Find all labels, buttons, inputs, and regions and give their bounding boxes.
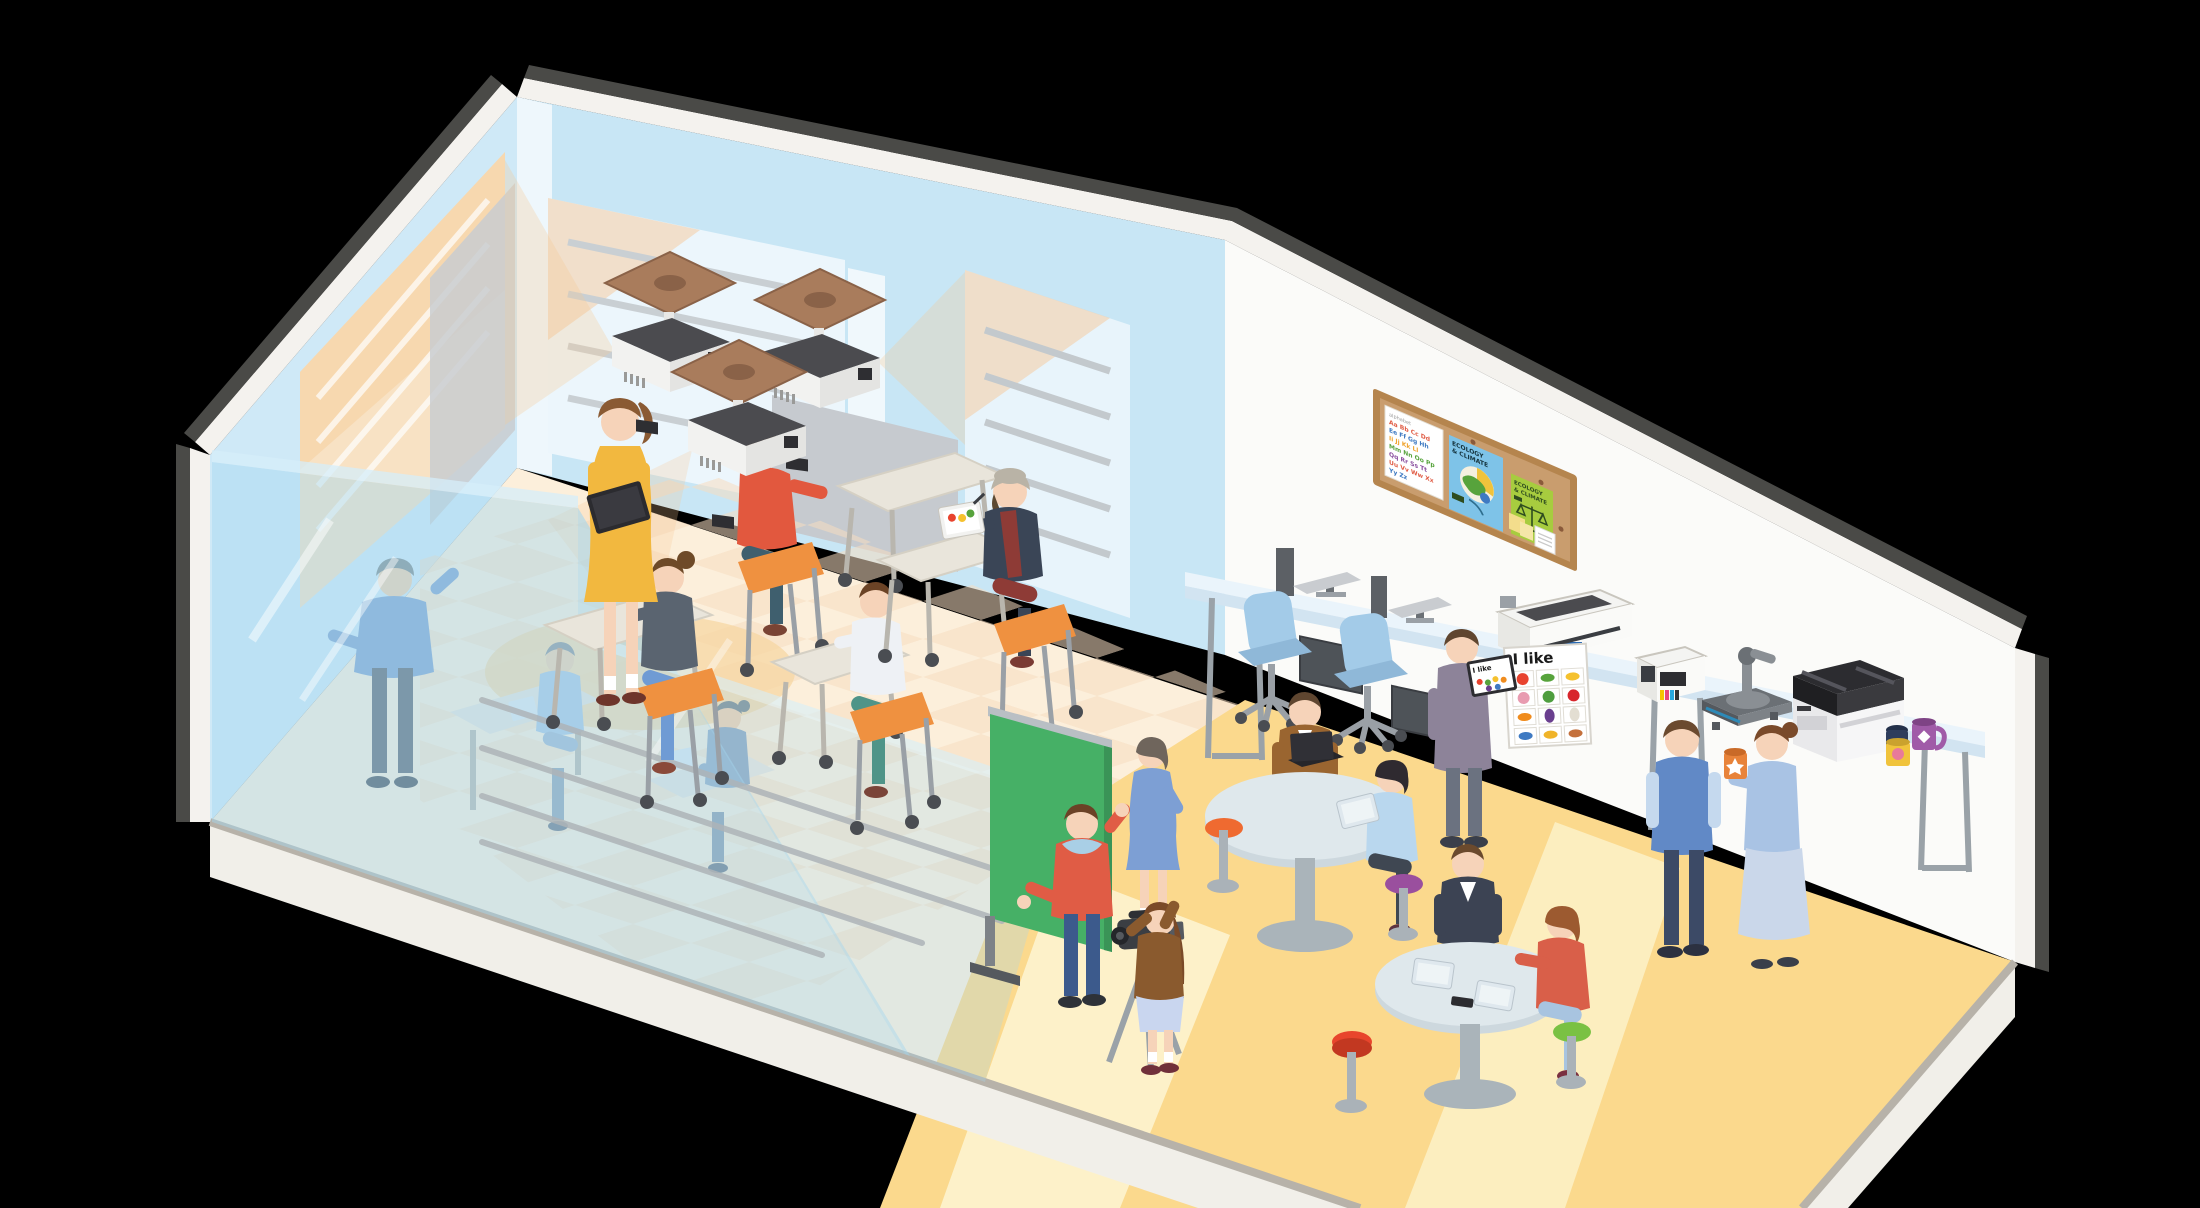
illustration-stage: alphabet Aa Bb Cc Dd Ee Ff Gg Hh Ii Jj K… — [0, 0, 2200, 1208]
printed-mug — [1886, 738, 1910, 766]
printed-poster: I like — [1504, 644, 1591, 748]
poster-title: I like — [1512, 648, 1554, 668]
classroom-illustration: alphabet Aa Bb Cc Dd Ee Ff Gg Hh Ii Jj K… — [0, 0, 2200, 1208]
tablet — [1411, 958, 1454, 989]
printed-mug-in-hand — [1724, 748, 1747, 779]
